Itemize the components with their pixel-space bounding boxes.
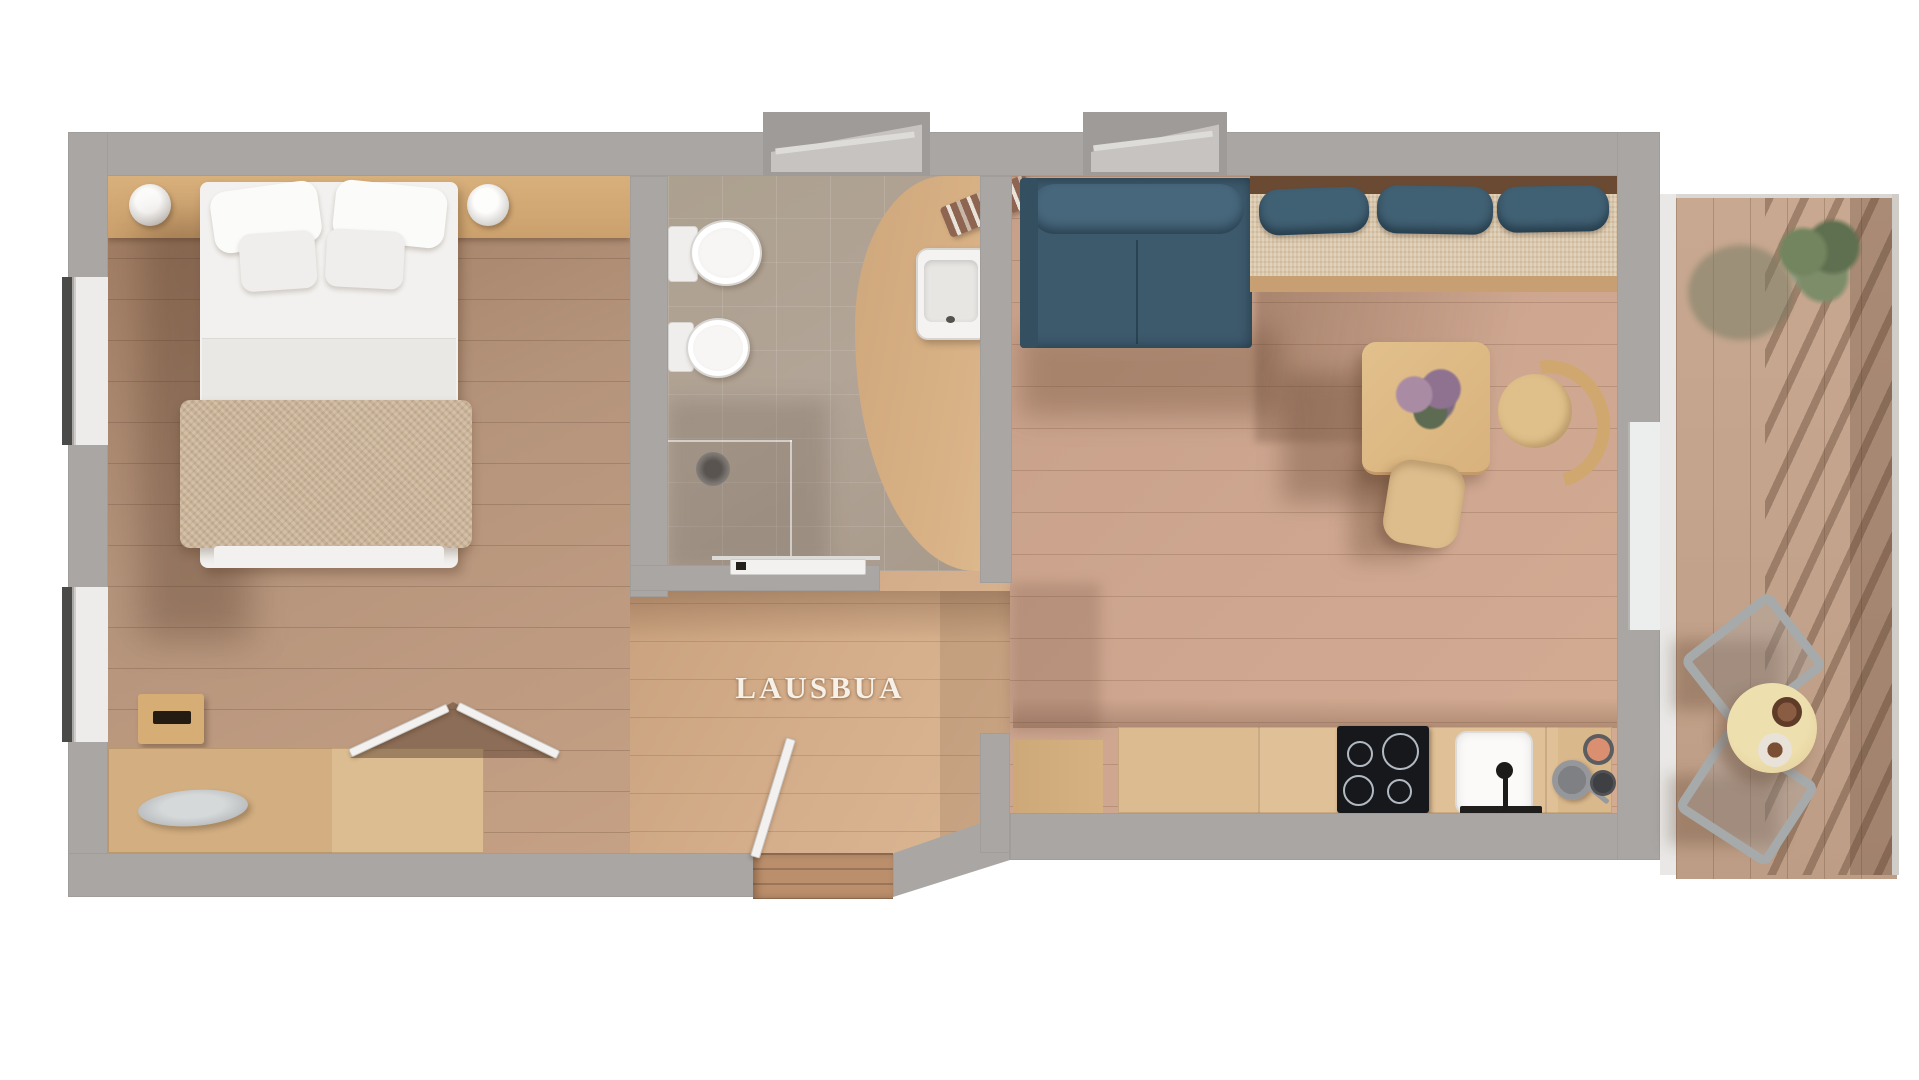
window-lower-sill — [74, 587, 108, 742]
wall-kitchen-stub — [980, 733, 1010, 853]
serving-bowl-dark — [1772, 697, 1802, 727]
bidet-bowl — [686, 318, 750, 378]
window-upper-frame — [62, 277, 72, 445]
bedside-lamp-left-icon — [129, 184, 171, 226]
pillow-small-right — [325, 228, 406, 290]
hob-burner-large — [1382, 733, 1419, 770]
wall-bathroom-left — [630, 176, 668, 597]
toilet-bowl — [690, 220, 762, 286]
cooking-pan-orange — [1583, 734, 1614, 765]
entry-niche-left — [763, 112, 930, 176]
faucet-stem — [1503, 776, 1508, 810]
dining-chair-right-seat — [1498, 374, 1572, 448]
wall-left — [68, 132, 108, 897]
sliding-door-panel — [730, 559, 866, 575]
sofa-armrest — [1020, 178, 1038, 348]
bench-pillow-3 — [1497, 185, 1610, 233]
shower-glass-line-v — [790, 440, 792, 571]
bench-pillow-2 — [1377, 185, 1494, 235]
railing — [1892, 194, 1899, 875]
bed-foot-sheet — [214, 546, 444, 566]
pillow-small-left — [238, 229, 318, 292]
shower-drain-icon — [696, 452, 730, 486]
hob-burner-small-1 — [1347, 741, 1373, 767]
shower-glass-line-h — [668, 440, 792, 442]
bed-throw — [180, 400, 472, 548]
bench-pillow-1 — [1258, 186, 1370, 236]
dining-chair-front — [1380, 457, 1468, 552]
sliding-door-handle — [736, 562, 746, 570]
potted-plant-icon — [1768, 212, 1868, 312]
entry-niche-right — [1083, 112, 1227, 176]
faucet-icon — [1496, 762, 1513, 779]
serving-bowl-light — [1758, 733, 1792, 767]
wall-bottom-right — [1010, 813, 1660, 860]
window-upper-sill — [74, 277, 108, 445]
counter-seam-1 — [1258, 727, 1260, 813]
washbasin-bowl — [924, 260, 978, 322]
counter-seam-2 — [1545, 727, 1547, 813]
floor-plan: LAUSBUA — [0, 0, 1919, 1080]
hob-burner-small-2 — [1387, 779, 1412, 804]
hob-burner-medium — [1343, 775, 1374, 806]
balcony-door-track — [1660, 194, 1676, 875]
sofa-back-roll — [1030, 184, 1244, 234]
duvet-fold — [202, 338, 456, 404]
kitchen-sink — [1455, 731, 1533, 815]
table-plant-icon — [1392, 366, 1466, 434]
window-lower-frame — [62, 587, 72, 742]
wall-bathroom-right — [980, 176, 1012, 583]
cooking-pan-dark — [1590, 770, 1616, 796]
room-label-lausbua: LAUSBUA — [630, 668, 1010, 708]
cooking-pot — [1552, 760, 1592, 800]
hallway-floor — [630, 565, 1010, 853]
corner-bench-front — [1250, 276, 1617, 292]
sofa-seat-seam — [1136, 240, 1138, 344]
washbasin-drain — [946, 316, 955, 323]
vestibule-steps — [753, 853, 893, 899]
kitchen-counter-left — [1013, 740, 1103, 813]
storage-box-slot — [153, 711, 191, 724]
bedside-lamp-right-icon — [467, 184, 509, 226]
